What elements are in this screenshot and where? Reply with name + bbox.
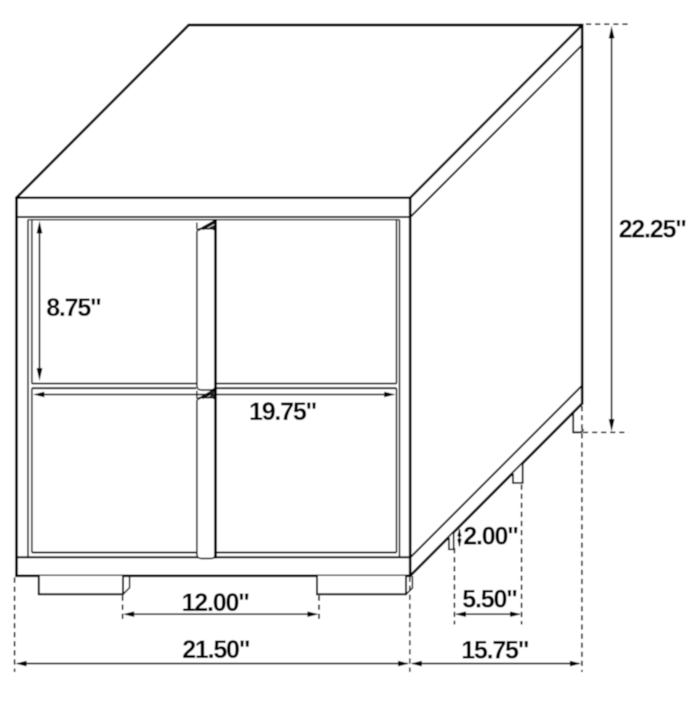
svg-text:12.00": 12.00" [182,589,250,617]
svg-text:15.75": 15.75" [461,637,529,665]
svg-text:21.50": 21.50" [182,636,250,664]
svg-text:22.25": 22.25" [619,216,687,244]
svg-text:8.75": 8.75" [46,294,101,322]
svg-text:5.50": 5.50" [462,586,517,614]
svg-text:19.75": 19.75" [249,398,317,426]
svg-text:2.00": 2.00" [463,522,518,550]
